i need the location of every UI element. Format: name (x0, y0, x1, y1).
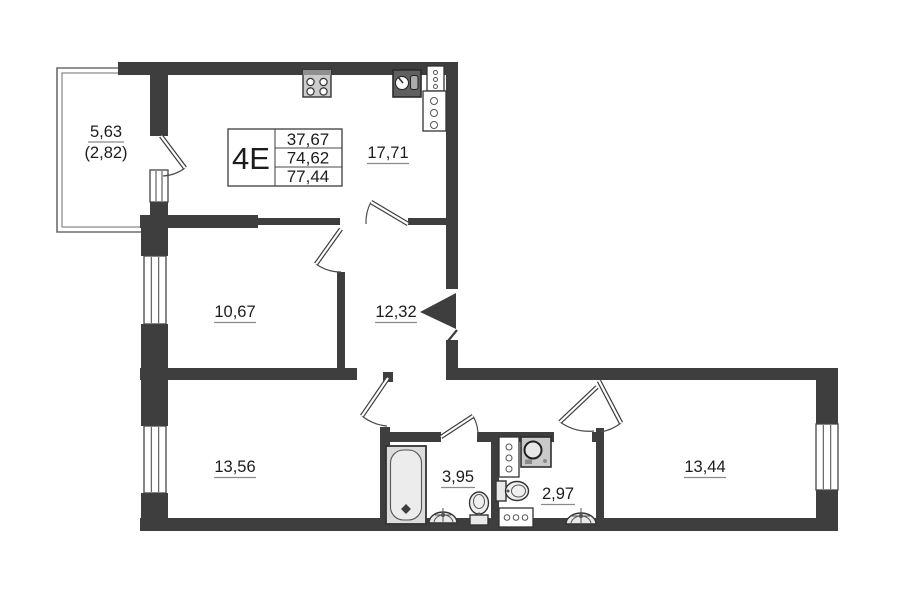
wall-wing-top-exterior (446, 368, 838, 380)
door-wc (560, 387, 597, 431)
toilet-icon (470, 492, 489, 525)
wall-bathroom-top-a (388, 432, 441, 442)
door-bedroom-bottom-left (362, 378, 388, 426)
total-area-value: 77,44 (287, 167, 330, 186)
door-bedroom-left (316, 229, 341, 272)
wash-basin-icon (429, 508, 457, 523)
wall-right-upper (446, 62, 458, 289)
wall-wc-1344-divider (596, 428, 604, 518)
towel-dryer-icon (499, 508, 533, 527)
vent-shaft-icon (423, 66, 446, 131)
hallway-area-label: 12,32 (375, 303, 416, 321)
wall-left-c (141, 493, 168, 531)
balcony-area-reduced-label: (2,82) (84, 144, 127, 162)
wall-kitchen-bottom-thick (140, 215, 258, 228)
wall-bathroom-wc-divider (491, 437, 499, 518)
wall-kitchen-bottom-thin (258, 218, 340, 225)
unit-label: 4E (232, 141, 270, 176)
balcony-area-label: 5,63 (90, 123, 122, 141)
living-area-value: 37,67 (287, 130, 330, 149)
window-balcony (150, 170, 168, 202)
wall-balcony-upper (150, 62, 168, 136)
toilet-icon (496, 481, 529, 501)
wall-left-a (141, 226, 168, 256)
wc-area-label: 2,97 (542, 485, 574, 503)
wc-fixtures (496, 437, 596, 527)
bathtub-icon (386, 446, 426, 524)
wall-1356-top (140, 368, 357, 380)
wall-kitchen-doorframe-east (408, 218, 446, 225)
door-bathroom (441, 416, 478, 437)
entrance-door-leaf (448, 330, 457, 341)
apartment-area-value: 74,62 (287, 149, 330, 168)
stove-icon (303, 70, 331, 97)
kitchen-fixtures (303, 66, 446, 131)
vent-shaft-icon (499, 437, 519, 477)
washing-machine-icon (521, 437, 551, 467)
entrance-arrow-icon (420, 293, 456, 329)
door-bedroom-bottom-right (599, 381, 621, 432)
window-bedroom-bottom-left (144, 426, 166, 493)
bedroom-left-area-label: 10,67 (214, 303, 255, 321)
unit-info-table: 4E 37,67 74,62 77,44 (228, 129, 342, 186)
bedroom-bottom-right-area-label: 13,44 (684, 458, 725, 476)
floor-plan-drawing: 4E 37,67 74,62 77,44 5,63 (2,82) 17,71 1… (0, 0, 900, 600)
floor-plan-page: 4E 37,67 74,62 77,44 5,63 (2,82) 17,71 1… (0, 0, 900, 600)
bedroom-bottom-left-area-label: 13,56 (214, 458, 255, 476)
kitchen-sink-icon (393, 70, 421, 97)
window-bedroom-left (144, 256, 166, 324)
kitchen-living-area-label: 17,71 (367, 144, 408, 162)
door-kitchen (366, 202, 408, 224)
entrance-door (420, 293, 457, 341)
bathroom-area-label: 3,95 (442, 468, 474, 486)
wall-bottom-exterior (140, 518, 838, 531)
wash-basin-icon (566, 508, 596, 524)
wall-right-1344-upper (816, 368, 838, 424)
window-bedroom-bottom-right (816, 424, 838, 490)
wall-corridor-west (337, 272, 345, 372)
